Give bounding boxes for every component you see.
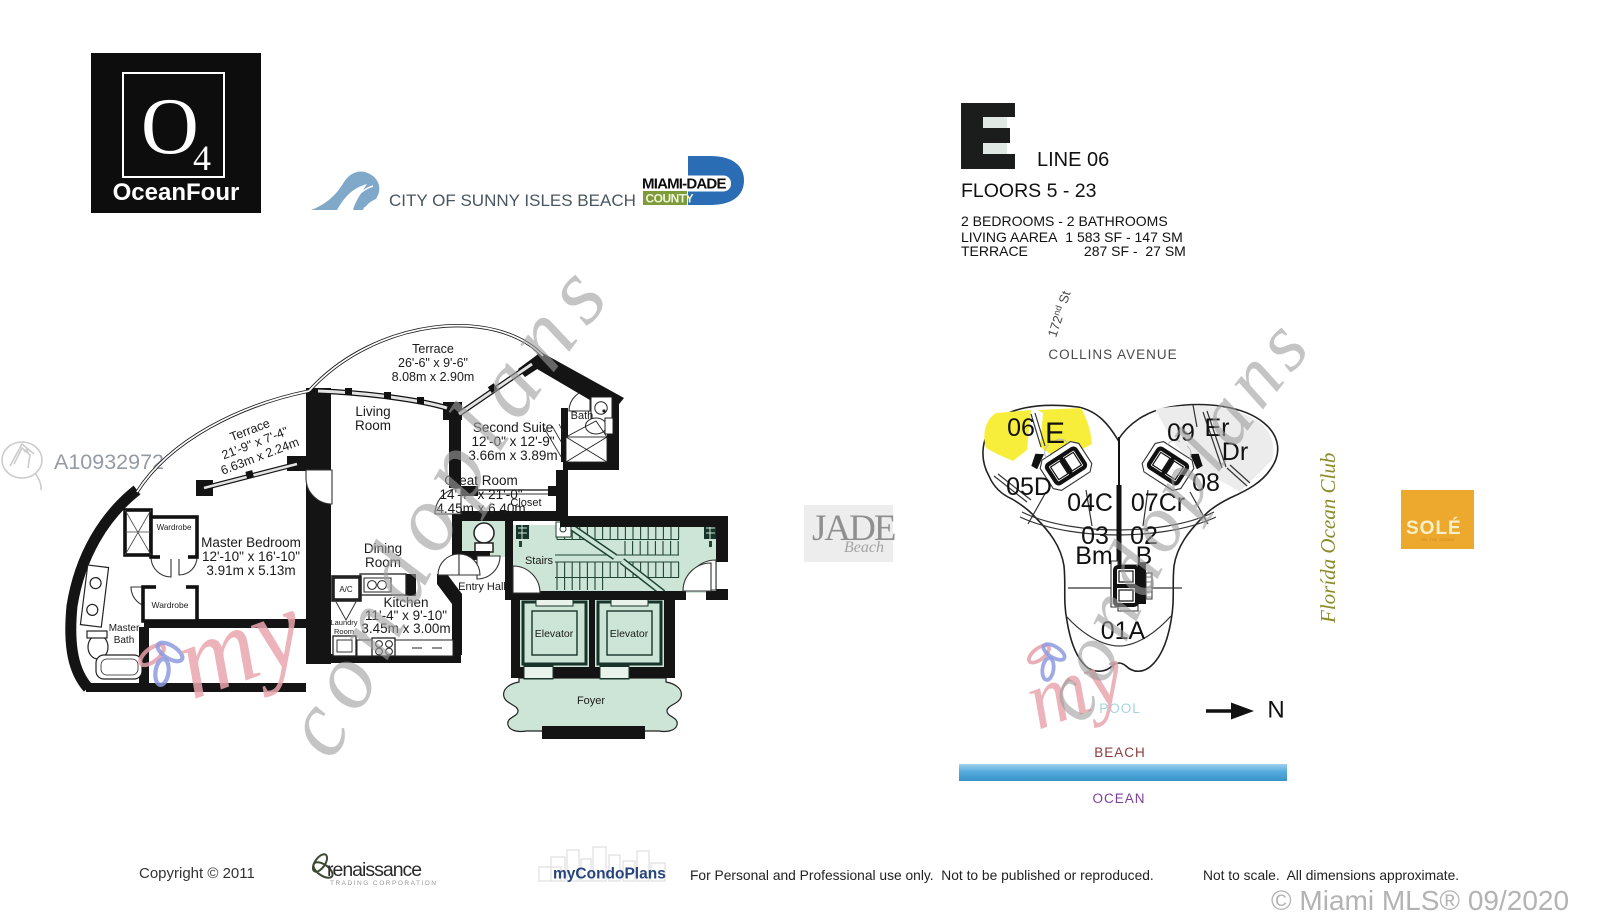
svg-text:renaissance: renaissance (327, 859, 421, 881)
svg-text:Bath: Bath (571, 410, 594, 422)
svg-text:Master Bedroom: Master Bedroom (201, 535, 301, 550)
svg-text:OCEAN: OCEAN (1092, 791, 1145, 806)
svg-text:Room: Room (355, 418, 391, 433)
svg-text:Closet: Closet (510, 497, 541, 509)
svg-text:12'-10" x 16'-10": 12'-10" x 16'-10" (202, 549, 300, 564)
svg-text:Foyer: Foyer (577, 695, 605, 707)
svg-text:Master: Master (109, 623, 140, 634)
svg-text:Entry Hall: Entry Hall (458, 581, 506, 593)
svg-text:Elevator: Elevator (610, 628, 649, 640)
svg-text:172nd St: 172nd St (1045, 289, 1074, 339)
svg-text:3.91m x 5.13m: 3.91m x 5.13m (206, 563, 295, 578)
svg-text:COUNTY: COUNTY (646, 192, 694, 206)
svg-text:MIAMI-DADE: MIAMI-DADE (642, 176, 726, 193)
svg-text:Living: Living (355, 404, 390, 419)
svg-text:COLLINS AVENUE: COLLINS AVENUE (1048, 347, 1177, 362)
svg-text:06: 06 (1007, 414, 1035, 442)
svg-text:BEACH: BEACH (1094, 745, 1146, 760)
svg-text:04C: 04C (1067, 489, 1113, 517)
svg-text:Stairs: Stairs (525, 555, 554, 567)
svg-text:N: N (1267, 697, 1284, 724)
svg-text:05D: 05D (1006, 473, 1052, 501)
svg-text:myCondoPlans: myCondoPlans (553, 866, 666, 883)
svg-text:Terrace: Terrace (412, 342, 454, 356)
svg-text:TRADING CORPORATION: TRADING CORPORATION (330, 880, 437, 887)
svg-text:Bath: Bath (114, 635, 135, 646)
svg-text:Elevator: Elevator (535, 628, 574, 640)
svg-text:Wardrobe: Wardrobe (157, 523, 192, 532)
svg-text:E: E (1045, 417, 1065, 450)
